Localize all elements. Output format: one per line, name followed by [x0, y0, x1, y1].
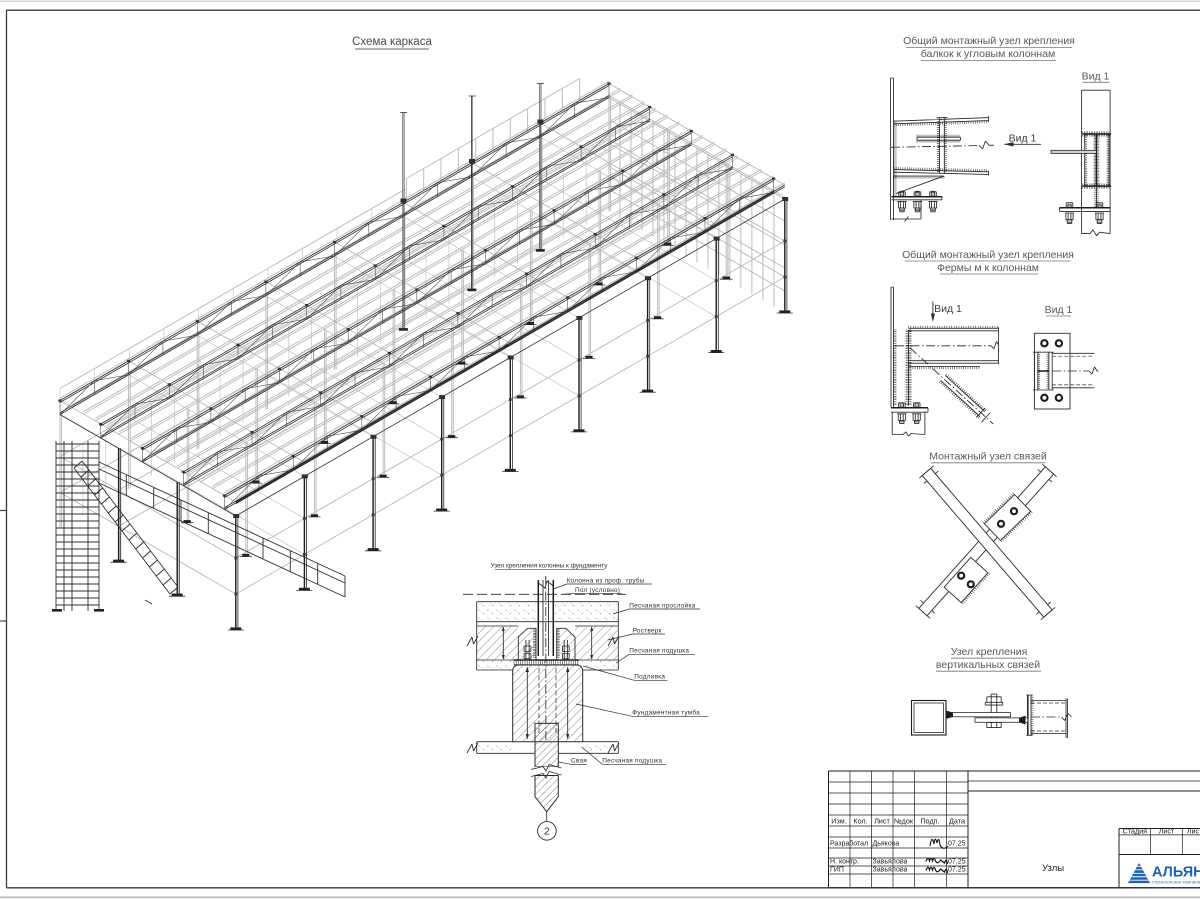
svg-text:Вид 1: Вид 1: [1045, 304, 1073, 316]
svg-text:Подп.: Подп.: [920, 817, 939, 826]
svg-text:Песчаная прослойка: Песчаная прослойка: [629, 601, 695, 609]
svg-text:балкок к угловым колоннам: балкок к угловым колоннам: [921, 48, 1056, 60]
svg-text:Узел крепления колонны к фунда: Узел крепления колонны к фундаменту: [491, 563, 609, 570]
svg-text:Лис: Лис: [1187, 826, 1200, 835]
svg-text:Пол (условно): Пол (условно): [575, 587, 620, 594]
svg-text:Завьялова: Завьялова: [873, 867, 908, 874]
svg-text:2: 2: [544, 826, 550, 838]
svg-text:07.25: 07.25: [948, 859, 966, 866]
svg-text:Схема каркаса: Схема каркаса: [352, 36, 432, 48]
svg-text:Песчаная подушка: Песчаная подушка: [602, 757, 662, 764]
svg-text:вертикальных связей: вертикальных связей: [936, 659, 1040, 671]
svg-text:Свая: Свая: [571, 757, 587, 764]
svg-text:строительная компания: строительная компания: [1152, 880, 1200, 885]
svg-text:Вид 1: Вид 1: [934, 303, 962, 315]
svg-text:Ростверк: Ростверк: [633, 627, 662, 634]
svg-text:№док: №док: [894, 817, 914, 826]
svg-text:Стадия: Стадия: [1123, 826, 1148, 835]
svg-text:Лист: Лист: [874, 817, 890, 826]
svg-text:07.25: 07.25: [948, 841, 966, 848]
svg-text:Разработал: Разработал: [830, 840, 868, 848]
svg-text:Завьялова: Завьялова: [873, 859, 908, 866]
svg-text:Общий монтажный узел крепления: Общий монтажный узел крепления: [903, 35, 1075, 47]
svg-text:Монтажный узел связей: Монтажный узел связей: [929, 451, 1047, 463]
svg-text:Дата: Дата: [949, 817, 965, 826]
svg-text:Лист: Лист: [1159, 826, 1175, 835]
svg-text:Вид 1: Вид 1: [1082, 71, 1110, 83]
svg-text:Узлы: Узлы: [1042, 863, 1064, 874]
svg-text:Узел крепления: Узел крепления: [951, 646, 1028, 658]
svg-text:Общий монтажный узел крепления: Общий монтажный узел крепления: [902, 249, 1074, 261]
svg-text:АЛЬЯН: АЛЬЯН: [1152, 865, 1200, 881]
svg-text:ГИП: ГИП: [830, 867, 844, 874]
svg-text:Фундаментная тумба: Фундаментная тумба: [632, 708, 700, 716]
svg-text:Дьякова: Дьякова: [873, 841, 900, 848]
svg-text:Кол.: Кол.: [853, 817, 867, 826]
svg-text:Колонна из проф. трубы: Колонна из проф. трубы: [567, 576, 645, 584]
svg-text:Н. контр.: Н. контр.: [830, 859, 859, 866]
svg-text:Изм.: Изм.: [831, 817, 846, 826]
svg-text:Подливка: Подливка: [634, 673, 665, 680]
svg-text:Песчаная подушка: Песчаная подушка: [629, 647, 689, 654]
svg-text:07.25: 07.25: [948, 867, 966, 874]
svg-text:Фермы м к колоннам: Фермы м к колоннам: [937, 262, 1039, 274]
